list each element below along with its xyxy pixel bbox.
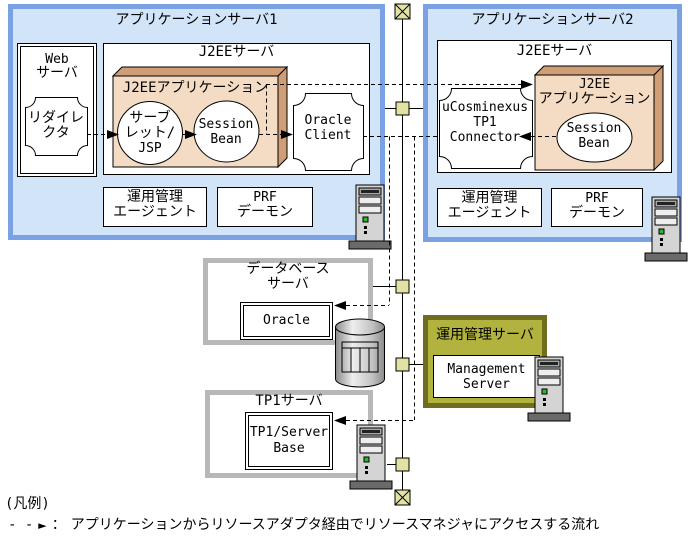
tp1-connector-line3: Connector (435, 130, 535, 145)
j2ee-application2-label-line2: アプリケーション (535, 92, 654, 107)
network-node (396, 358, 409, 371)
j2ee-server2-title: J2EEサーバ (437, 44, 672, 59)
database-server-title-line1: データベース (203, 262, 373, 277)
legend-label: (凡例) (5, 497, 50, 512)
j2ee-server1-title: J2EEサーバ (103, 45, 370, 60)
legend-dashes: - - (8, 518, 33, 533)
management-product-line2: Server (433, 377, 540, 392)
network-node (396, 458, 409, 471)
legend-separator: ： (52, 518, 66, 533)
ops-agent2-line2: エージェント (437, 206, 542, 221)
ops-agent2-line1: 運用管理 (437, 191, 542, 206)
tp1-connector-line1: uCosminexus (435, 100, 535, 115)
app1-title: アプリケーションサーバ1 (8, 13, 385, 28)
session-bean2-line2: Bean (544, 136, 644, 151)
j2ee-application1-label: J2EEアプリケーション (113, 81, 278, 96)
legend-text: アプリケーションからリソースアダプタ経由でリソースマネジャにアクセスする流れ (71, 518, 600, 533)
tp1-server-base-line1: TP1/Server (245, 425, 333, 440)
prf-daemon2-line1: PRF (551, 191, 643, 206)
ops-agent1-line1: 運用管理 (103, 190, 207, 205)
session-bean1-line1: Session (176, 117, 276, 132)
legend-line: - -►：アプリケーションからリソースアダプタ経由でリソースマネジャにアクセスす… (8, 518, 599, 533)
session-bean2-line1: Session (544, 121, 644, 136)
session-bean1-line2: Bean (176, 132, 276, 147)
management-server-title: 運用管理サーバ (423, 328, 547, 343)
tp1-server-title: TP1サーバ (205, 394, 373, 409)
redirector-label-line2: クタ (25, 126, 87, 141)
network-terminator-icon (395, 4, 410, 19)
prf-daemon1-line1: PRF (217, 190, 313, 205)
legend-flow-arrow-icon: ► (38, 518, 46, 533)
app2-title: アプリケーションサーバ2 (423, 13, 682, 28)
oracle-client-line2: Client (288, 128, 368, 143)
management-product-line1: Management (433, 362, 540, 377)
database-server-title-line2: サーバ (203, 277, 373, 292)
prf-daemon2-line2: デーモン (551, 206, 643, 221)
web-server-title-line2: サーバ (17, 66, 97, 81)
network-node (396, 102, 409, 115)
architecture-diagram: アプリケーションサーバ1 Web サーバ リダイレ クタ J2EEサーバ J2E… (0, 0, 688, 549)
redirector-label-line1: リダイレ (25, 111, 87, 126)
network-node (396, 280, 409, 293)
ops-agent1-line2: エージェント (103, 205, 207, 220)
j2ee-application2-label-line1: J2EE (535, 77, 654, 92)
network-terminator-icon (395, 490, 410, 505)
oracle-client-line1: Oracle (288, 113, 368, 128)
tp1-server-base-line2: Base (245, 441, 333, 456)
oracle-label: Oracle (240, 313, 333, 328)
tp1-connector-line2: TP1 (435, 115, 535, 130)
prf-daemon1-line2: デーモン (217, 205, 313, 220)
